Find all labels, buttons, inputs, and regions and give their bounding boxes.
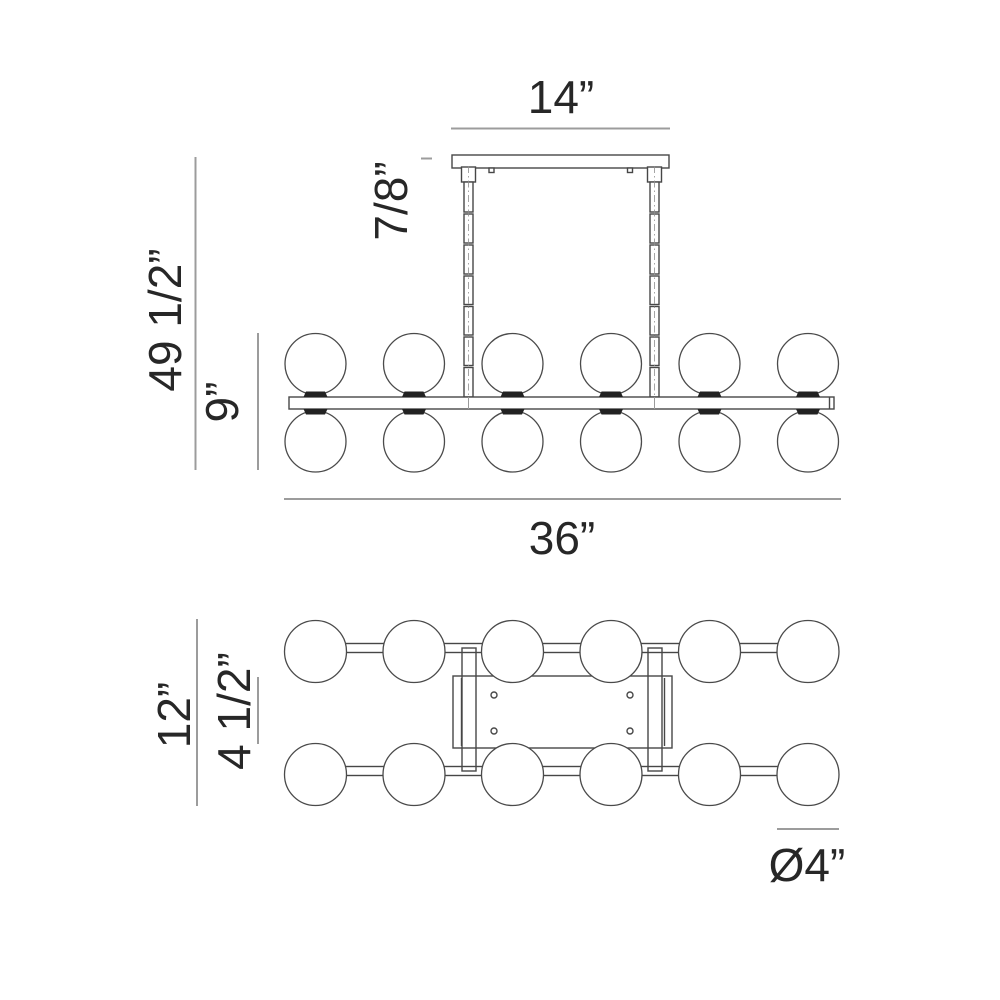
- side-view: 14” 7/8” 49 1/2” 9” 36”: [139, 71, 841, 564]
- globe: [581, 334, 642, 395]
- socket: [304, 392, 328, 398]
- globe: [285, 744, 347, 806]
- globe: [778, 411, 839, 472]
- socket: [402, 409, 426, 415]
- label-plate-width: 4 1/2”: [208, 652, 260, 770]
- suspension-rod: [462, 166, 476, 397]
- globe: [285, 334, 346, 395]
- fixture-bar: [289, 397, 834, 409]
- globe: [581, 411, 642, 472]
- globe: [384, 334, 445, 395]
- socket: [698, 392, 722, 398]
- socket: [698, 409, 722, 415]
- globe: [778, 334, 839, 395]
- globe: [679, 334, 740, 395]
- label-canopy-height: 7/8”: [365, 161, 417, 240]
- label-fixture-height: 9”: [196, 382, 248, 423]
- fixture-dimension-diagram: 14” 7/8” 49 1/2” 9” 36”: [0, 0, 1000, 1000]
- label-overall-height: 49 1/2”: [139, 248, 191, 391]
- label-globe-diameter: Ø4”: [769, 839, 846, 891]
- globe: [384, 411, 445, 472]
- label-overall-width: 12”: [148, 682, 200, 748]
- canopy-screw: [489, 168, 494, 173]
- globe: [285, 621, 347, 683]
- suspension-rod: [648, 166, 662, 397]
- globe: [482, 744, 544, 806]
- socket: [599, 409, 623, 415]
- socket: [501, 392, 525, 398]
- globe: [777, 621, 839, 683]
- socket: [304, 409, 328, 415]
- globe: [482, 411, 543, 472]
- label-fixture-length: 36”: [529, 512, 595, 564]
- label-canopy-width: 14”: [528, 71, 594, 123]
- canopy-screw: [628, 168, 633, 173]
- globe: [679, 621, 741, 683]
- technical-drawing-sheet: 14” 7/8” 49 1/2” 9” 36”: [0, 0, 1000, 1000]
- socket: [402, 392, 426, 398]
- globe: [383, 744, 445, 806]
- socket: [599, 392, 623, 398]
- mounting-plate: [453, 676, 672, 748]
- globe: [285, 411, 346, 472]
- ceiling-canopy: [452, 155, 669, 168]
- globe: [679, 744, 741, 806]
- globe: [482, 621, 544, 683]
- globe: [580, 621, 642, 683]
- socket: [796, 409, 820, 415]
- globe: [580, 744, 642, 806]
- globe: [482, 334, 543, 395]
- socket: [796, 392, 820, 398]
- globe: [777, 744, 839, 806]
- globe: [679, 411, 740, 472]
- globe: [383, 621, 445, 683]
- top-view: 12” 4 1/2” Ø4”: [148, 619, 845, 891]
- socket: [501, 409, 525, 415]
